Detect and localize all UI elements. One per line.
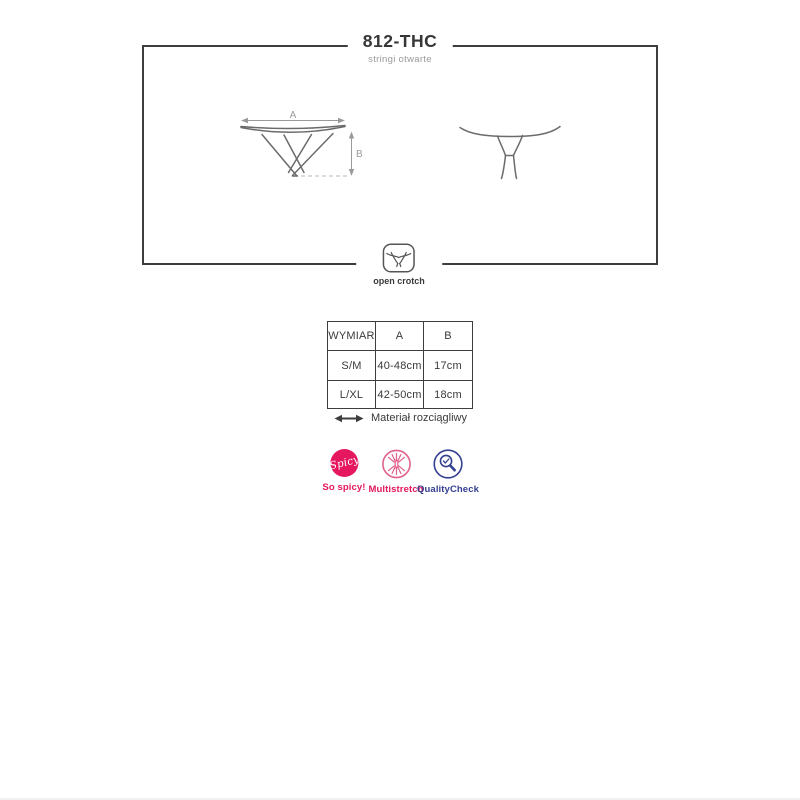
size-table-header-row: WYMIAR A B	[328, 322, 473, 351]
size-table: WYMIAR A B S/M 40-48cm 17cm L/XL 42-50cm…	[327, 321, 473, 409]
open-crotch-feature: open crotch	[356, 243, 442, 286]
dimension-a-arrow: A	[241, 110, 345, 123]
product-code: 812-THC	[363, 31, 438, 52]
badge-so-spicy-label: So spicy!	[322, 482, 365, 493]
sm-dim-b: 17cm	[424, 351, 473, 381]
badge-multistretch: Multistretch	[368, 449, 423, 495]
size-sm: S/M	[328, 351, 376, 381]
product-type: stringi otwarte	[363, 54, 438, 65]
product-header: 812-THC stringi otwarte	[348, 31, 453, 65]
lxl-dim-b: 18cm	[424, 381, 473, 409]
sm-dim-a: 40-48cm	[376, 351, 424, 381]
badge-quality-check-label: QualityCheck	[417, 484, 479, 495]
multistretch-icon	[381, 449, 411, 479]
dim-b-label: B	[356, 149, 363, 160]
lxl-dim-a: 42-50cm	[376, 381, 424, 409]
front-view-drawing	[241, 126, 345, 177]
material-note: Materiał rozciągliwy	[322, 412, 478, 424]
back-view-drawing	[460, 127, 560, 179]
badge-so-spicy: Spicy So spicy!	[322, 449, 365, 493]
badge-quality-check: QualityCheck	[417, 449, 479, 495]
header-b: B	[424, 322, 473, 351]
dim-a-label: A	[290, 110, 297, 121]
stretch-arrow-icon	[333, 413, 365, 424]
open-crotch-label: open crotch	[373, 276, 425, 286]
table-row: L/XL 42-50cm 18cm	[328, 381, 473, 409]
header-wymiar: WYMIAR	[328, 322, 376, 351]
qualitycheck-icon	[433, 449, 463, 479]
dimension-b-arrow: B	[301, 132, 363, 177]
open-crotch-icon	[382, 243, 415, 273]
material-note-text: Materiał rozciągliwy	[371, 412, 467, 424]
table-row: S/M 40-48cm 17cm	[328, 351, 473, 381]
badge-multistretch-label: Multistretch	[368, 484, 423, 495]
spicy-badge-icon: Spicy	[330, 449, 358, 477]
garment-drawings: A B	[142, 45, 658, 265]
spicy-circle-text: Spicy	[328, 454, 360, 473]
header-a: A	[376, 322, 424, 351]
size-lxl: L/XL	[328, 381, 376, 409]
